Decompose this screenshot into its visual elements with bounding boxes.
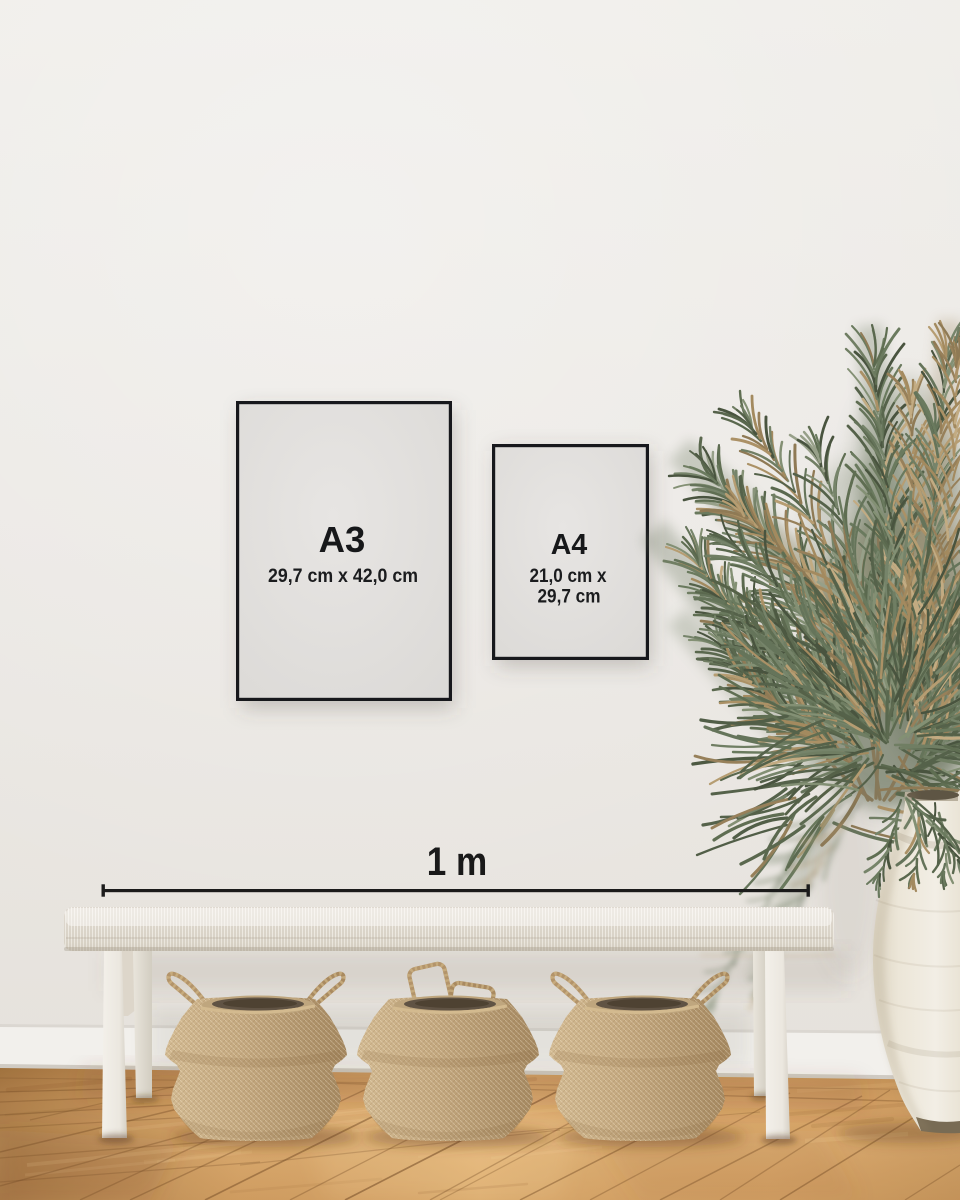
svg-text:29,7 cm: 29,7 cm: [538, 587, 601, 608]
svg-text:A3: A3: [319, 519, 366, 560]
svg-text:29,7 cm x 42,0 cm: 29,7 cm x 42,0 cm: [268, 566, 418, 587]
svg-text:21,0 cm x: 21,0 cm x: [530, 566, 607, 587]
svg-text:A4: A4: [551, 529, 588, 561]
svg-text:1 m: 1 m: [427, 840, 488, 884]
